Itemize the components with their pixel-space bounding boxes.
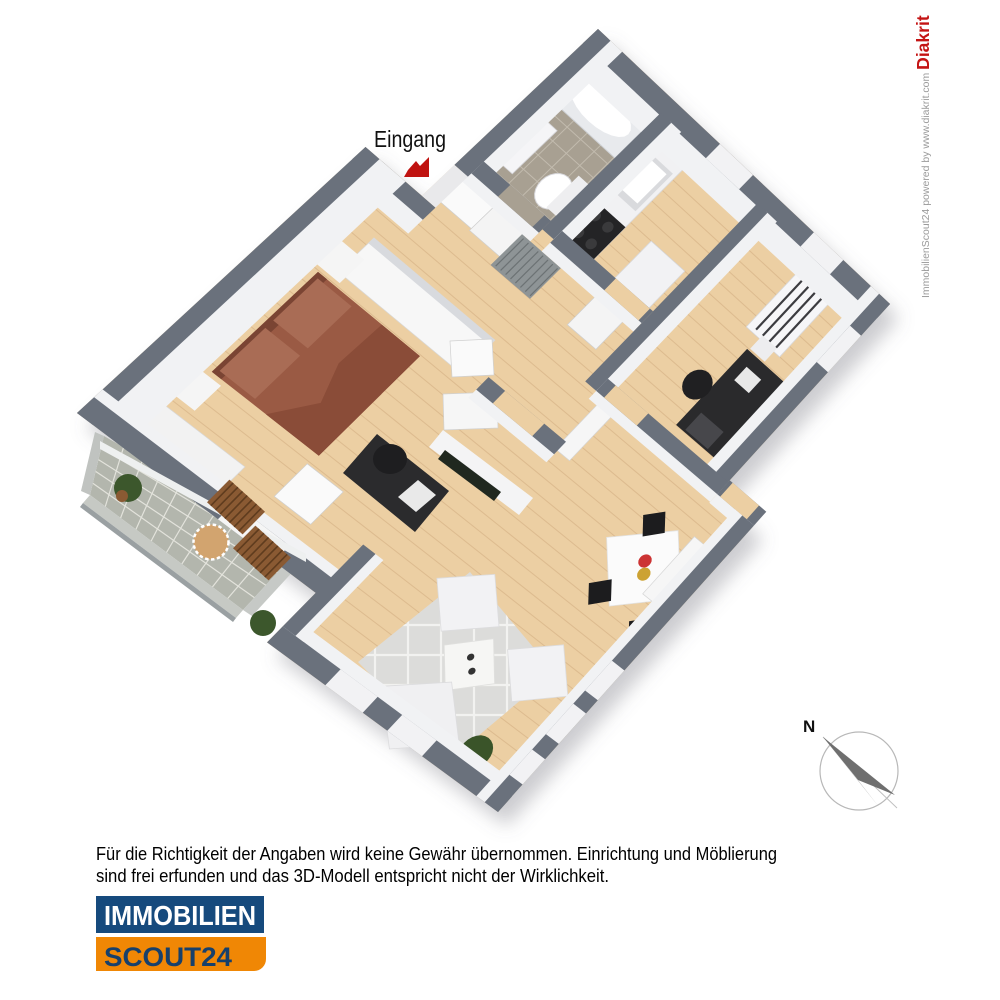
svg-text:IMMOBILIEN: IMMOBILIEN [104, 900, 256, 931]
svg-text:SCOUT24: SCOUT24 [104, 942, 232, 972]
svg-text:sind frei erfunden und das 3D-: sind frei erfunden und das 3D-Modell ent… [96, 865, 609, 886]
svg-text:Für die Richtigkeit der Angabe: Für die Richtigkeit der Angaben wird kei… [96, 843, 777, 864]
svg-text:Eingang: Eingang [374, 126, 446, 152]
svg-text:N: N [803, 717, 815, 736]
